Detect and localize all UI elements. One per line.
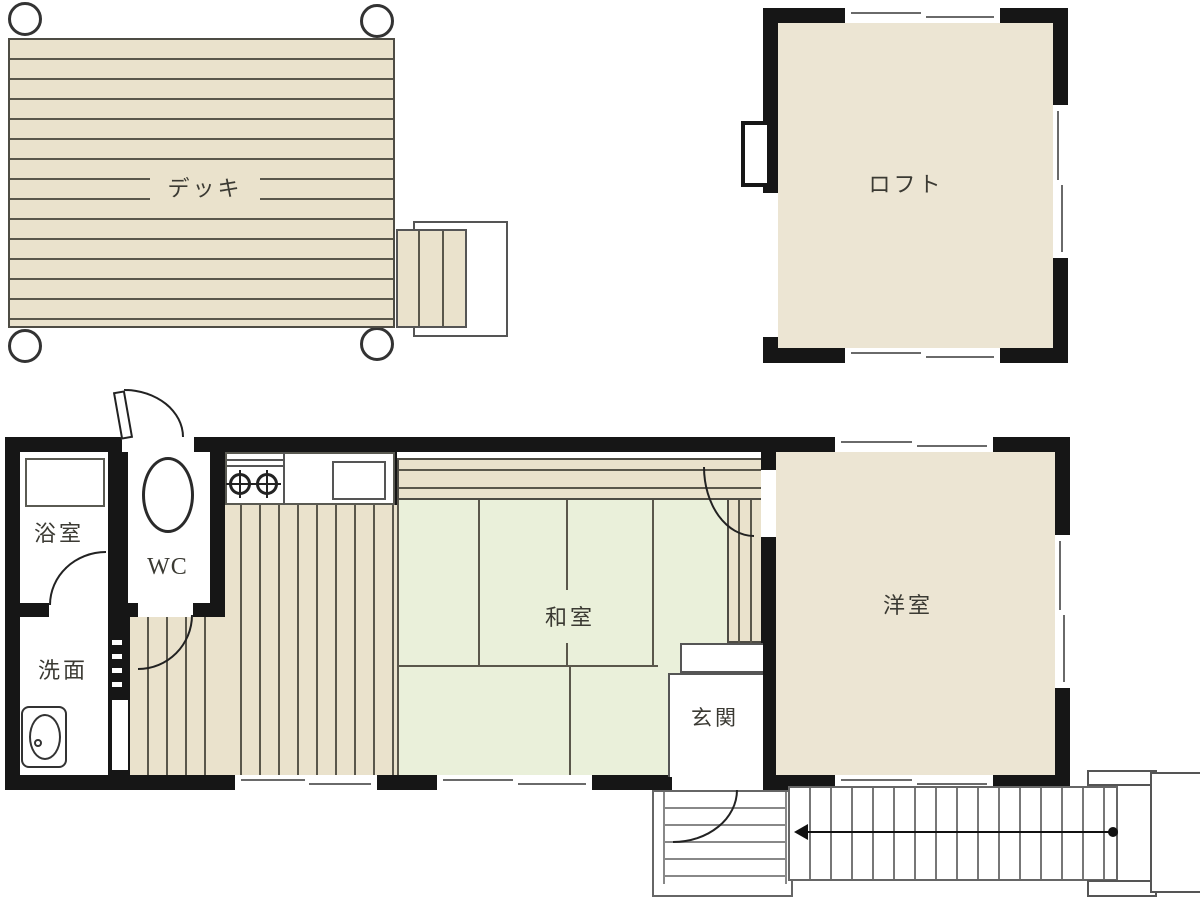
toilet-icon (142, 457, 194, 533)
tatami-room-label: 和室 (518, 600, 622, 632)
washbasin-drain (34, 739, 42, 747)
deck-steps (396, 229, 467, 328)
sliding-door-opening (112, 700, 128, 770)
arrow-dot (1108, 827, 1118, 837)
tatami-line (566, 500, 568, 590)
entrance-label: 玄関 (684, 703, 746, 731)
loft-hatch (741, 121, 767, 187)
floor-plan-canvas: デッキ ロフト (0, 0, 1200, 899)
entrance-step (680, 643, 763, 673)
deck-label: デッキ (150, 172, 260, 202)
interior-wall (210, 437, 225, 603)
wall-opening (763, 193, 778, 337)
door-opening (49, 603, 108, 617)
window (835, 437, 993, 452)
door-swing-arc (124, 389, 184, 437)
landing-platform (1150, 772, 1200, 893)
tatami-line (478, 500, 480, 665)
door-opening (122, 437, 194, 452)
window (235, 775, 377, 790)
landing-tab (1087, 770, 1157, 786)
direction-arrow (798, 831, 1114, 833)
window (845, 348, 1000, 363)
window (437, 775, 592, 790)
door-opening (761, 470, 776, 537)
deck-post-icon (360, 327, 394, 361)
tatami-line (397, 665, 658, 667)
toilet-label: WC (140, 553, 195, 581)
washbasin-bowl (29, 714, 61, 760)
tatami-line (566, 643, 568, 665)
sliding-door-tick (112, 668, 122, 673)
window (1055, 535, 1070, 688)
window (1053, 105, 1068, 258)
counter-divider (283, 452, 285, 505)
bathtub-icon (25, 458, 105, 507)
washroom-label: 洗面 (30, 655, 96, 683)
window (845, 8, 1000, 23)
deck-post-icon (8, 2, 42, 36)
sliding-door-tick (112, 654, 122, 659)
western-room-label: 洋室 (858, 589, 958, 619)
hall-floor (223, 505, 397, 775)
counter-backsplash-line (227, 459, 283, 461)
walkway (788, 786, 1118, 881)
landing-tab (1087, 880, 1157, 897)
deck-post-icon (360, 4, 394, 38)
tatami-line (569, 667, 571, 775)
tatami-line (652, 500, 654, 665)
deck-step-line (418, 231, 420, 326)
bathroom-label: 浴室 (28, 518, 90, 546)
deck-step-line (442, 231, 444, 326)
loft-label: ロフト (856, 168, 956, 198)
door-opening (672, 777, 763, 790)
sliding-door-tick (112, 640, 122, 645)
sliding-door-tick (112, 682, 122, 687)
burner-tick (266, 470, 268, 498)
deck-post-icon (8, 329, 42, 363)
kitchen-sink-icon (332, 461, 386, 500)
counter-backsplash-line (227, 465, 283, 467)
burner-tick (239, 470, 241, 498)
direction-arrow-head (786, 824, 808, 840)
